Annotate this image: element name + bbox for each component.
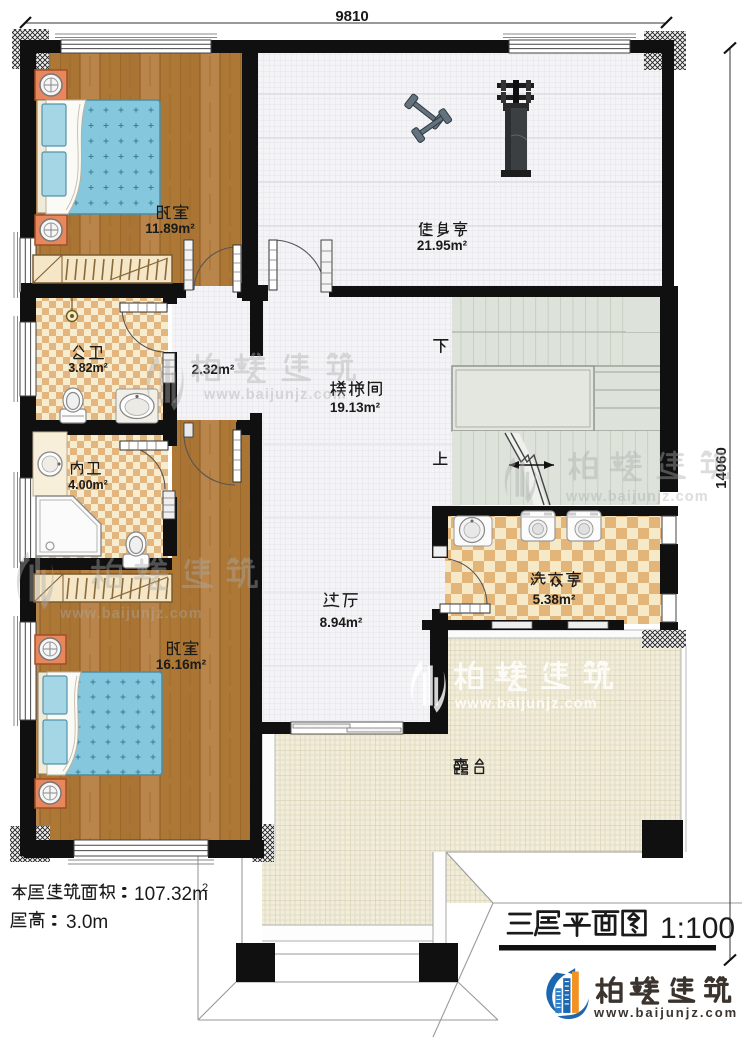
svg-text:4.00m²: 4.00m² <box>68 478 108 492</box>
svg-text:www.baijunjz.com: www.baijunjz.com <box>203 387 347 403</box>
svg-text:3.0m: 3.0m <box>66 912 108 933</box>
svg-text:www.baijunjz.com: www.baijunjz.com <box>59 606 203 622</box>
svg-text:www.baijunjz.com: www.baijunjz.com <box>593 1005 738 1020</box>
svg-text:www.baijunjz.com: www.baijunjz.com <box>565 489 709 505</box>
svg-text:21.95m²: 21.95m² <box>417 238 468 253</box>
svg-text:3.82m²: 3.82m² <box>68 361 108 375</box>
svg-text:1:100: 1:100 <box>660 912 735 945</box>
svg-text:www.baijunjz.com: www.baijunjz.com <box>454 696 598 712</box>
svg-text:5.38m²: 5.38m² <box>533 592 576 607</box>
svg-text:8.94m²: 8.94m² <box>320 615 363 630</box>
svg-text:2: 2 <box>202 882 208 894</box>
svg-text:11.89m²: 11.89m² <box>145 221 195 236</box>
svg-text:107.32m: 107.32m <box>134 884 208 905</box>
svg-text:9810: 9810 <box>335 8 368 25</box>
svg-text:16.16m²: 16.16m² <box>156 657 207 672</box>
